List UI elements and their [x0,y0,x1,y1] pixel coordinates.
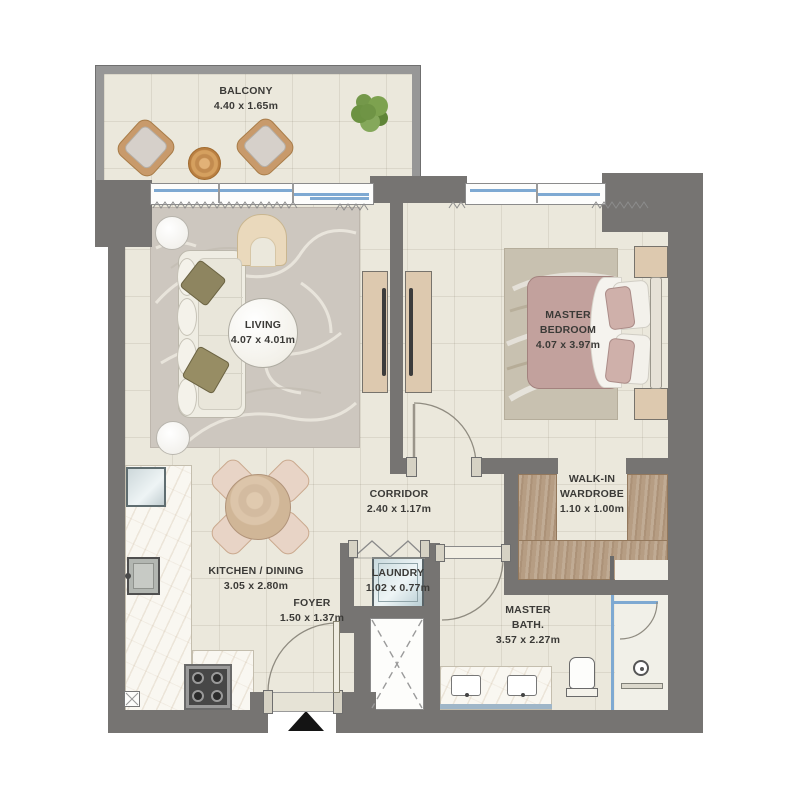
toilet [569,657,595,689]
laundry-label: LAUNDRY 1.02 x 0.77m [366,566,430,596]
shower-bar [621,683,663,689]
toilet-tank [566,688,598,697]
sink-basin [133,563,154,589]
nightstand [634,246,668,278]
wall-segment [504,580,670,595]
entrance-arrow-icon [288,711,324,731]
kitchen-sink [127,557,160,595]
floor-drain [124,691,140,707]
burner [192,690,204,702]
nightstand [634,388,668,420]
balcony-side-table [188,147,221,180]
stove [184,664,232,710]
burner [211,672,223,684]
sofa-back-cushion [177,298,197,336]
wall-segment [626,458,670,474]
vanity-mirror [440,704,552,709]
window-glazing [470,189,536,192]
chair-cushion [123,124,170,171]
tv-cabinet-living [362,271,388,393]
vanity-sink [507,675,537,696]
side-table [156,421,190,455]
wall-segment [354,608,370,733]
vanity-sink [451,675,481,696]
wall-segment [368,710,428,733]
tv-screen [409,288,413,376]
wall-segment [95,180,152,247]
master-bedroom-label: MASTER BEDROOM 4.07 x 3.97m [536,308,600,353]
wall-segment [424,710,703,733]
window-mullion [218,183,220,203]
wall-segment [354,606,424,618]
dining-table [225,474,291,540]
armchair [237,214,287,266]
wall-segment [370,176,467,203]
bath-door-threshold [442,546,503,559]
entrance-door-leaf [333,621,340,693]
wall-segment [108,710,260,733]
window-glazing [154,189,292,192]
faucet [125,573,131,579]
window-glazing [538,193,600,196]
wall-segment [668,230,703,733]
bed-pillow [604,338,635,385]
faucet [521,693,525,697]
door-jamb [406,457,417,477]
balcony-label: BALCONY 4.40 x 1.65m [214,84,278,114]
living-room-label: LIVING 4.07 x 4.01m [231,318,295,348]
shower-head-icon [633,660,649,676]
wall-segment [602,173,703,232]
bed-headboard [650,277,662,389]
plant-icon [360,104,376,120]
door-jamb [348,540,358,558]
window-mullion [292,183,294,203]
wardrobe-label: WALK-IN WARDROBE 1.10 x 1.00m [560,472,624,517]
door-jamb [420,540,430,558]
fridge [126,467,166,507]
foyer-label: FOYER 1.50 x 1.37m [280,596,344,626]
duct-shaft [370,618,424,710]
kitchen-dining-label: KITCHEN / DINING 3.05 x 2.80m [208,564,303,594]
shower-head-dot [640,667,644,671]
shower-glass [614,601,658,604]
burner [192,672,204,684]
entrance-threshold [268,692,334,712]
door-jamb [471,457,482,477]
side-table [155,216,189,250]
master-bath-label: MASTER BATH. 3.57 x 2.27m [496,603,560,648]
floor-plan: LIVING 4.07 x 4.01m [0,0,800,800]
armchair-seat [250,237,276,267]
burner [211,690,223,702]
wall-segment [504,458,518,595]
window-glazing [310,197,369,200]
door-jamb [435,544,445,562]
chair-cushion [242,123,289,170]
tv-cabinet-bedroom [405,271,432,393]
door-jamb [333,690,343,714]
coffee-table: LIVING 4.07 x 4.01m [228,298,298,368]
window-glazing [294,193,369,196]
tv-screen [382,288,386,376]
door-jamb [263,690,273,714]
faucet [465,693,469,697]
door-jamb [501,544,511,562]
corridor-label: CORRIDOR 2.40 x 1.17m [367,487,431,517]
window-mullion [536,183,538,203]
wall-segment [390,200,403,465]
wall-segment [108,247,125,712]
